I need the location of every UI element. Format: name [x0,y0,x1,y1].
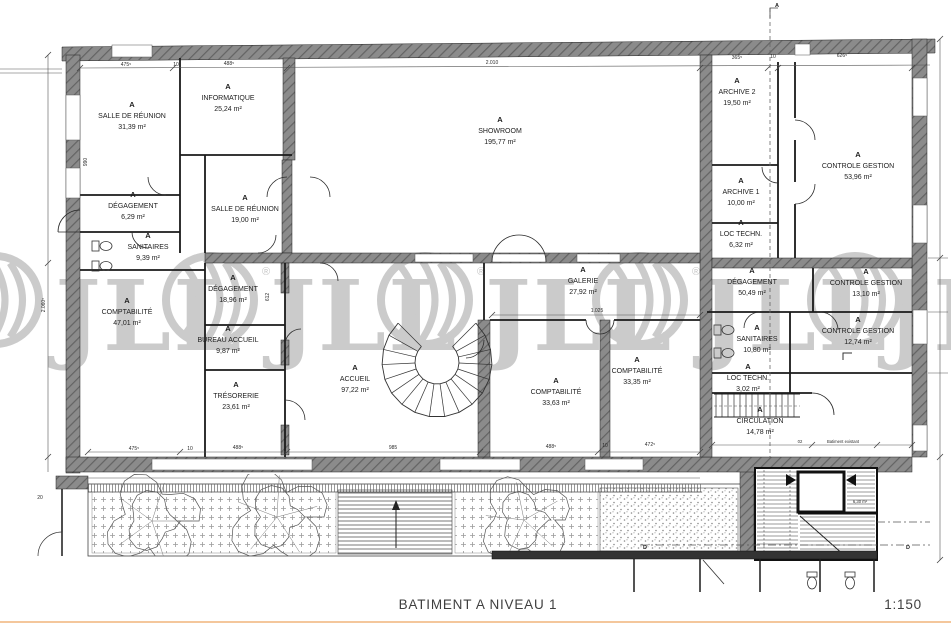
dim-label: 488⁵ [233,445,243,451]
registered-icon: ® [262,266,270,278]
room-zone: A [145,231,151,240]
room-zone: A [242,193,248,202]
room-name: SHOWROOM [478,128,522,135]
dim-label: 475⁵ [129,446,139,452]
dim-label: 488⁵ [546,444,556,450]
jll-lens-icon [0,256,39,344]
room-area: 13,10 m² [852,291,880,298]
room-area: 195,77 m² [484,139,516,146]
room-zone: A [734,76,740,85]
dim-label: 10 [770,54,776,60]
room-area: 47,01 m² [113,320,141,327]
room-label: A ARCHIVE 1 10,00 m² [723,176,760,207]
room-name: SALLE DE RÉUNION [211,204,279,213]
ramp [338,490,452,554]
room-name: COMPTABILITÉ [612,366,663,375]
dim-label: 626⁵ [837,53,847,59]
room-name: DÉGAGEMENT [727,277,778,286]
room-label: A CONTROLE GESTION 53,96 m² [822,150,894,181]
room-area: 3,02 m² [736,386,760,393]
section-marker-a: A [775,3,779,9]
room-label: A INFORMATIQUE 25,24 m² [201,82,254,113]
room-name: ARCHIVE 2 [719,89,756,96]
room-zone: A [738,218,744,227]
elevator-shaft [798,472,844,512]
room-area: 10,00 m² [727,200,755,207]
room-zone: A [553,376,559,385]
room-name: LOC TECHN. [720,231,762,238]
drawing-title: BATIMENT A NIVEAU 1 [399,597,558,612]
room-zone: A [124,296,130,305]
room-name: CIRCULATION [737,418,784,425]
room-name: COMPTABILITÉ [531,387,582,396]
dim-label: 612 [265,293,271,302]
room-name: DÉGAGEMENT [108,201,159,210]
dim-label: 10 [187,446,193,452]
room-zone: A [230,273,236,282]
dim-label: 2.010 [486,60,499,66]
room-label: A COMPTABILITÉ 33,63 m² [531,376,582,407]
room-zone: A [497,115,503,124]
dim-label: 2.060⁵ [41,298,47,313]
dim-label: 365⁵ [732,55,742,61]
gravel-area [600,488,738,551]
room-area: 19,00 m² [231,217,259,224]
room-area: 19,50 m² [723,100,751,107]
room-label: A CIRCULATION 14,78 m² [737,405,784,436]
room-name: SANITAIRES [127,244,168,251]
room-label: A TRÉSORERIE 23,61 m² [213,380,259,411]
room-zone: A [757,405,763,414]
room-zone: A [130,190,136,199]
room-zone: A [863,267,869,276]
room-name: ACCUEIL [340,376,370,383]
room-name: SANITAIRES [736,336,777,343]
dim-label: 02 [798,439,803,444]
dim-label: 472⁵ [645,442,655,448]
room-area: 9,39 m² [136,255,160,262]
room-zone: A [129,100,135,109]
drawing-scale: 1:150 [884,597,922,612]
room-area: 10,80 m² [743,347,771,354]
room-area: 53,96 m² [844,174,872,181]
dim-label: 488⁵ [224,61,234,67]
room-name: LOC TECHN. [727,375,769,382]
room-area: 9,87 m² [216,348,240,355]
room-area: 6,32 m² [729,242,753,249]
room-area: 23,61 m² [222,404,250,411]
room-area: 33,35 m² [623,379,651,386]
room-name: COMPTABILITÉ [102,307,153,316]
section-marker-d: D [906,545,910,551]
room-name: SALLE DE RÉUNION [98,111,166,120]
dim-label: 1.025 [591,308,604,314]
dim-label: 475⁵ [121,62,131,68]
room-name: CONTROLE GESTION [830,280,902,287]
room-zone: A [352,363,358,372]
room-zone: A [738,176,744,185]
room-area: 33,63 m² [542,400,570,407]
room-label: A SALLE DE RÉUNION 31,39 m² [98,100,166,131]
room-name: TRÉSORERIE [213,391,259,400]
room-zone: A [225,82,231,91]
room-area: 14,78 m² [746,429,774,436]
room-area: 50,49 m² [738,290,766,297]
room-area: 27,92 m² [569,289,597,296]
room-zone: A [855,150,861,159]
dim-label: 20 [37,495,43,501]
room-area: 18,96 m² [219,297,247,304]
room-label: A SANITAIRES 9,39 m² [127,231,168,262]
room-zone: A [749,266,755,275]
title-bar: BATIMENT A NIVEAU 1 1:150 [0,597,951,623]
room-zone: A [233,380,239,389]
annex-building [492,551,877,592]
room-label: A SALLE DE RÉUNION 19,00 m² [211,193,279,224]
room-zone: A [754,323,760,332]
dim-label: 10 [602,443,608,449]
room-name: CONTROLE GESTION [822,328,894,335]
floor-plan-canvas: JLL JLL JLL JLL JLL [0,0,951,631]
room-label: A ARCHIVE 2 19,50 m² [719,76,756,107]
room-area: 6,29 m² [121,214,145,221]
room-name: BUREAU ACCUEIL [197,337,258,344]
stair-block [755,468,877,560]
room-name: CONTROLE GESTION [822,163,894,170]
room-zone: A [855,315,861,324]
room-label: A SHOWROOM 195,77 m² [478,115,522,146]
room-area: 12,74 m² [844,339,872,346]
room-name: DÉGAGEMENT [208,284,259,293]
room-area: 25,24 m² [214,106,242,113]
room-zone: A [634,355,640,364]
existing-building-note: Batiment existant [827,439,860,444]
room-area: 31,39 m² [118,124,146,131]
toilet-icon [807,572,855,589]
registered-icon: ® [692,266,700,278]
dim-label: 990 [83,158,89,167]
planted-area [92,492,336,553]
section-marker-d: D [643,545,647,551]
room-zone: A [580,265,586,274]
dim-label: 10 [173,62,179,68]
dim-label: 985 [389,445,398,451]
footer-rule [0,621,951,623]
room-area: 97,22 m² [341,387,369,394]
room-name: ARCHIVE 1 [723,189,760,196]
room-name: GALERIE [568,278,599,285]
dim-label: 6,30 m² [853,499,868,504]
room-zone: A [225,324,231,333]
room-name: INFORMATIQUE [201,95,254,102]
room-zone: A [745,362,751,371]
central-wall [700,55,712,457]
